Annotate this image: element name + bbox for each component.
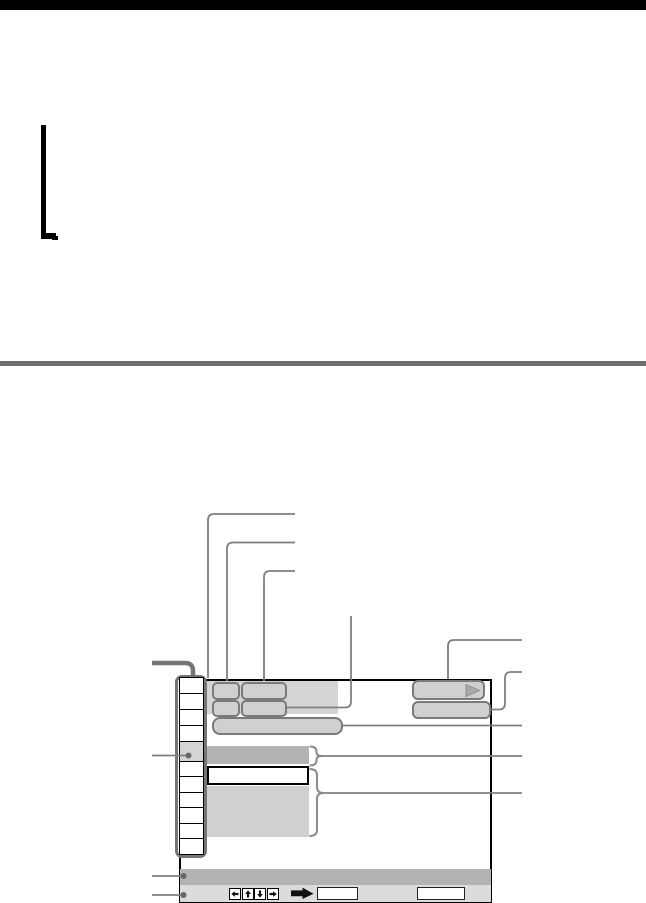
index-cell [180, 793, 203, 809]
index-cell [180, 710, 203, 726]
selected-row [207, 746, 309, 764]
left-arrow-icon [230, 889, 240, 899]
detail-block [207, 786, 309, 837]
l-bracket-mark [41, 125, 46, 235]
section-divider [0, 361, 646, 366]
outlined-row [207, 766, 309, 785]
status-box-2 [412, 701, 491, 719]
right-arrow-icon [268, 889, 278, 899]
callout-line-button-1 [227, 543, 295, 682]
function-box-2 [417, 887, 465, 900]
up-arrow-icon [243, 889, 253, 899]
up-arrow-key [242, 888, 254, 900]
index-cell [180, 839, 203, 854]
callout-line-status-play [448, 640, 522, 679]
menu-button-4 [241, 700, 287, 717]
index-cell [180, 726, 203, 742]
menu-button-3 [212, 700, 240, 717]
top-rule [0, 0, 646, 10]
index-cell [180, 824, 203, 840]
index-cell-highlighted [180, 742, 203, 762]
manual-page [0, 0, 646, 903]
status-box-play [412, 680, 485, 700]
bottom-bar-dark [180, 869, 491, 885]
function-box-1 [317, 887, 358, 900]
menu-wide-bar [212, 717, 343, 735]
down-arrow-key [254, 888, 266, 900]
menu-button-1 [212, 682, 240, 700]
left-arrow-key [229, 888, 241, 900]
callout-line-menu-panel [208, 514, 295, 678]
callout-line-button-2 [264, 571, 295, 681]
callout-line-status-2 [491, 672, 522, 710]
right-arrow-key [267, 888, 279, 900]
l-bracket-mark-step [52, 236, 58, 240]
index-cell [180, 808, 203, 824]
down-arrow-icon [255, 889, 265, 899]
menu-button-2 [241, 682, 287, 700]
index-cell [180, 762, 203, 778]
index-column [179, 677, 204, 855]
index-cell [180, 777, 203, 793]
index-cell [180, 694, 203, 710]
index-cell [180, 678, 203, 694]
